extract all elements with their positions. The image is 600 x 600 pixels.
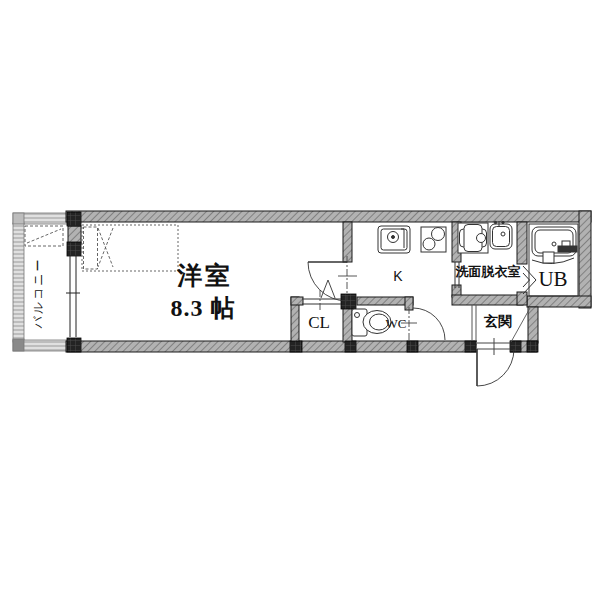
label-balcony: バルコニー bbox=[32, 257, 44, 328]
label-entrance: 玄関 bbox=[484, 315, 512, 329]
label-closet: CL bbox=[308, 314, 330, 331]
kitchen-sink-icon bbox=[378, 226, 410, 253]
label-washroom: 洗面脱衣室 bbox=[456, 265, 521, 278]
wc-door bbox=[413, 308, 445, 340]
lavatory-icon bbox=[490, 221, 512, 249]
label-room-name: 洋室 bbox=[177, 263, 233, 288]
balcony-washer-space bbox=[25, 226, 63, 246]
floor-plan: バルコニー 洋室 8.3 帖 CL WC K 洗面脱衣室 UB 玄関 bbox=[0, 0, 600, 600]
entrance-door bbox=[477, 349, 514, 386]
label-bath: UB bbox=[538, 269, 567, 290]
stove-icon bbox=[421, 227, 446, 252]
closet-door-panel bbox=[302, 299, 341, 304]
loft-ladder-area bbox=[82, 225, 178, 271]
label-kitchen: K bbox=[393, 269, 402, 283]
washer-pan-icon bbox=[458, 223, 488, 253]
label-room-size: 8.3 帖 bbox=[171, 296, 236, 320]
genkan-step-line bbox=[472, 305, 476, 341]
floorplan-drawing bbox=[0, 0, 600, 600]
window-balcony bbox=[66, 256, 80, 337]
genkan-diagonal-line bbox=[511, 308, 530, 342]
label-toilet: WC bbox=[386, 317, 407, 330]
